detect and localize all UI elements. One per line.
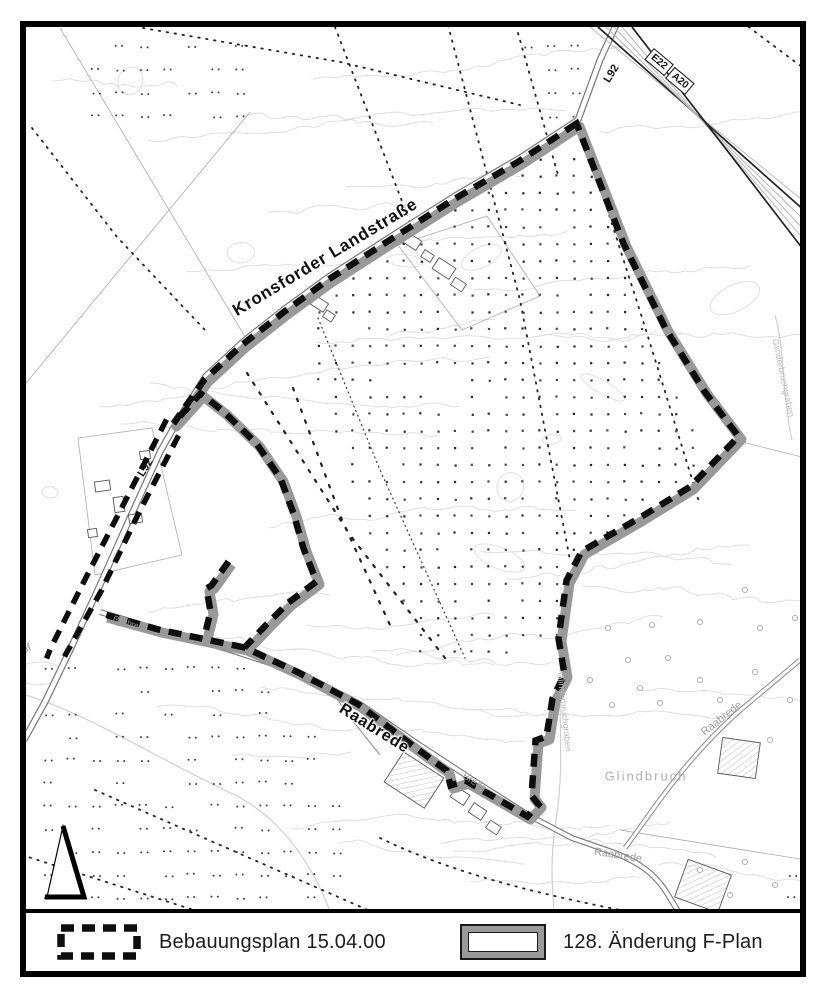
bebauungsplan-symbol xyxy=(56,923,142,961)
map-frame: Kronsforder LandstraßeRaabredeL92L92Glin… xyxy=(20,21,806,977)
buildings xyxy=(87,233,760,909)
legend-item-fplan: 128. Änderung F-Plan xyxy=(460,924,763,960)
legend-item-bebauungsplan: Bebauungsplan 15.04.00 xyxy=(56,923,386,961)
meadow-symbols xyxy=(587,587,797,897)
motorway-a20 xyxy=(590,27,800,253)
legend: Bebauungsplan 15.04.00 128. Änderung F-P… xyxy=(26,909,800,971)
parcel-lines xyxy=(26,28,800,860)
plan-page: Kronsforder LandstraßeRaabredeL92L92Glin… xyxy=(0,0,826,996)
fplan-symbol xyxy=(460,924,546,960)
north-arrow-icon xyxy=(45,826,84,897)
map-canvas xyxy=(26,27,800,909)
legend-label-fplan: 128. Änderung F-Plan xyxy=(563,931,763,954)
map-area: Kronsforder LandstraßeRaabredeL92L92Glin… xyxy=(26,27,800,909)
orchard-dot-grid xyxy=(317,158,695,654)
legend-label-bebauungsplan: Bebauungsplan 15.04.00 xyxy=(159,931,386,954)
fplan-boundary-band xyxy=(108,127,742,820)
